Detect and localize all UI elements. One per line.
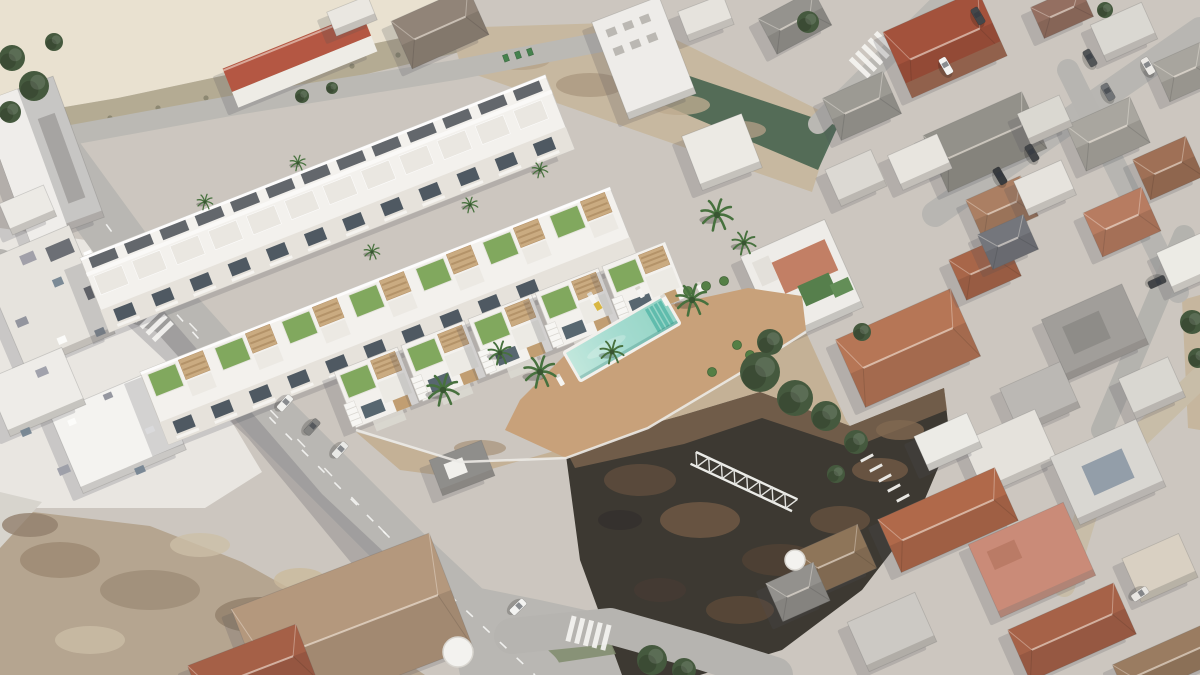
aerial-scene-svg <box>0 0 1200 675</box>
aerial-view <box>0 0 1200 675</box>
atmospheric-haze <box>0 0 1200 675</box>
layer-haze <box>0 0 1200 675</box>
